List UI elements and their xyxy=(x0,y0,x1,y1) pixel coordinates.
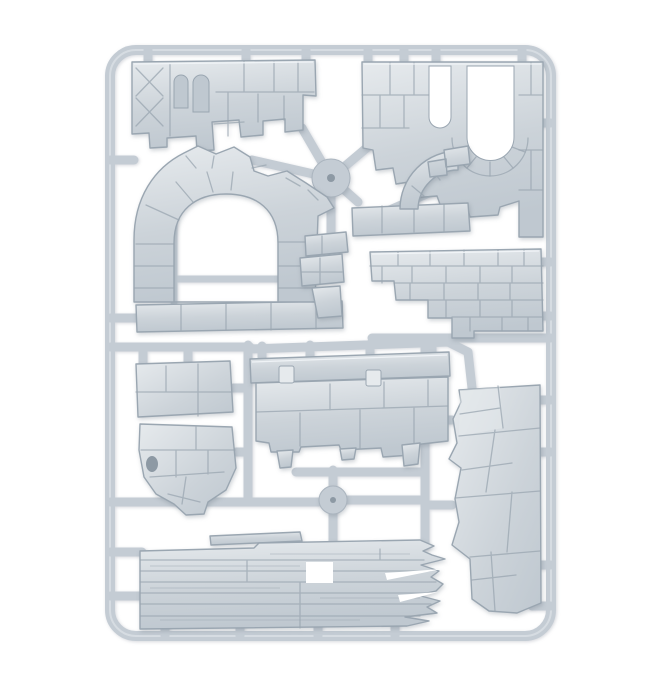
injection-hub-2 xyxy=(319,486,347,514)
photo-canvas: Product photo of a light grey plastic mo… xyxy=(0,0,669,691)
slab-silhouette xyxy=(136,361,233,417)
arched-niche-left xyxy=(174,75,188,108)
narrow-slot-opening xyxy=(429,66,451,128)
rock-recess xyxy=(146,456,158,472)
plank-notch-hole xyxy=(306,562,333,583)
connector-tab-left xyxy=(279,366,294,383)
connector-tab-right xyxy=(366,370,381,386)
fragment-c xyxy=(312,286,342,318)
hub-dimple xyxy=(327,174,335,182)
fragment-b xyxy=(300,254,344,286)
u-arch-opening xyxy=(467,66,514,161)
door-sill-strip xyxy=(136,301,343,332)
hanging-leg-3 xyxy=(402,443,420,466)
sprue-photo: Product photo of a light grey plastic mo… xyxy=(0,0,669,691)
hub-dimple xyxy=(330,497,336,503)
part-rock-slab xyxy=(136,361,233,417)
fragment-a xyxy=(305,232,348,256)
arched-niche-right xyxy=(193,75,209,112)
hanging-leg-1 xyxy=(277,450,293,468)
hanging-leg-2 xyxy=(340,448,356,460)
